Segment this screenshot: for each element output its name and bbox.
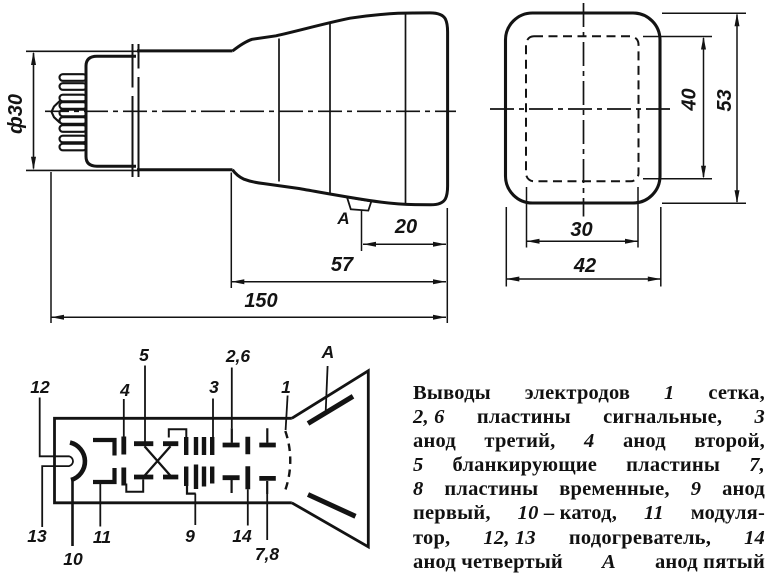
svg-text:57: 57 — [331, 254, 354, 276]
svg-text:1: 1 — [281, 377, 291, 397]
svg-text:A: A — [336, 209, 349, 228]
svg-text:40: 40 — [679, 88, 701, 111]
svg-text:14: 14 — [232, 526, 252, 546]
svg-text:42: 42 — [573, 255, 596, 277]
svg-text:20: 20 — [394, 216, 417, 238]
svg-text:53: 53 — [714, 89, 736, 111]
svg-text:30: 30 — [570, 219, 592, 241]
svg-text:3: 3 — [209, 377, 219, 397]
svg-text:2,6: 2,6 — [225, 346, 251, 366]
svg-text:7,8: 7,8 — [255, 544, 280, 564]
svg-text:12: 12 — [30, 377, 50, 397]
svg-text:13: 13 — [27, 526, 47, 546]
svg-text:9: 9 — [185, 526, 195, 546]
svg-text:ф30: ф30 — [5, 94, 27, 134]
svg-text:11: 11 — [93, 527, 111, 547]
svg-text:5: 5 — [139, 345, 149, 365]
svg-text:150: 150 — [244, 290, 277, 312]
svg-text:A: A — [321, 342, 335, 362]
svg-text:10: 10 — [63, 549, 83, 569]
svg-text:4: 4 — [119, 380, 130, 400]
